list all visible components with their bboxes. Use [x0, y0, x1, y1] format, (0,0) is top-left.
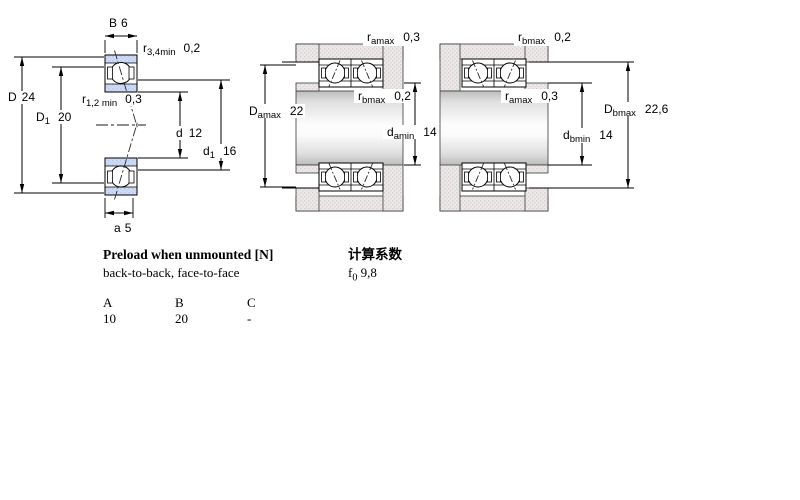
cage-pocket	[129, 171, 134, 183]
bearing-datasheet-page: B6 r3,4min0,2 D24 D120 r1,2 min0,3 d12 d…	[0, 0, 800, 500]
bearing-pair-top	[462, 59, 526, 87]
calculation-title: 计算系数	[348, 247, 402, 262]
outer-ring-bottom	[105, 187, 137, 195]
preload-value-a: 10	[103, 311, 175, 327]
cage-pocket	[108, 171, 113, 183]
figure-single-bearing: B6 r3,4min0,2 D24 D120 r1,2 min0,3 d12 d…	[5, 16, 240, 235]
preload-table-values: 10 20 -	[103, 311, 319, 327]
preload-value-c: -	[247, 311, 319, 327]
inner-ring-bottom	[105, 158, 137, 166]
cage-pocket	[108, 67, 113, 79]
outer-ring-top	[105, 55, 137, 63]
bearing-pair-top	[319, 59, 383, 87]
bearing-diagram-canvas: B6 r3,4min0,2 D24 D120 r1,2 min0,3 d12 d…	[0, 0, 800, 245]
preload-col-c: C	[247, 295, 319, 311]
dim-label-B: B6	[109, 16, 128, 30]
cage-pocket	[129, 67, 134, 79]
preload-subtitle: back-to-back, face-to-face	[103, 265, 319, 280]
figure-arrangement-a: ramax0,3 Damax22 rbmax0,2 damin14	[245, 30, 445, 211]
dim-label-d: d12	[176, 126, 202, 140]
preload-title: Preload when unmounted [N]	[103, 247, 319, 262]
preload-col-b: B	[175, 295, 247, 311]
shaft-shoulder	[296, 165, 319, 173]
preload-table-header: A B C	[103, 295, 319, 311]
bearing-pair-bottom	[319, 163, 383, 191]
preload-col-a: A	[103, 295, 175, 311]
preload-table: A B C 10 20 -	[103, 295, 319, 327]
inner-ring-top	[105, 84, 137, 92]
preload-section: Preload when unmounted [N] back-to-back,…	[103, 247, 319, 327]
dim-label-r34: r3,4min0,2	[143, 41, 201, 58]
dim-label-D: D24	[8, 90, 35, 104]
factor-value: 9,8	[361, 265, 377, 280]
calculation-factor-line: f0 9,8	[348, 265, 402, 286]
figure-arrangement-b: rbmax0,2 ramax0,3 Dbmax22,6 dbmin14	[440, 30, 674, 211]
bearing-pair-bottom	[462, 163, 526, 191]
shaft-shoulder	[525, 165, 548, 173]
shaft-shoulder	[296, 83, 319, 91]
dim-label-a: a5	[114, 221, 132, 235]
calculation-factor-section: 计算系数 f0 9,8	[348, 247, 402, 286]
preload-value-b: 20	[175, 311, 247, 327]
factor-subscript: 0	[352, 273, 357, 284]
